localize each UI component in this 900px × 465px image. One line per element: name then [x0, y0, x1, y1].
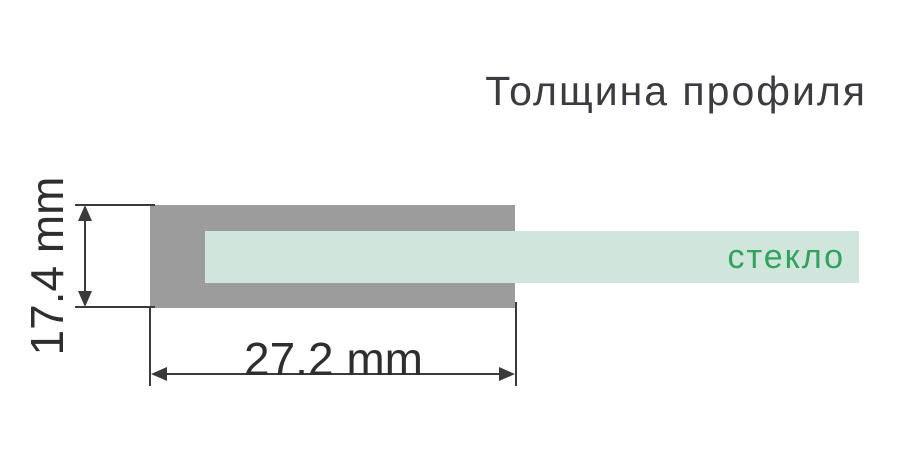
glass-label: стекло — [728, 231, 860, 283]
height-dimension-label: 17.4 mm — [20, 177, 74, 356]
glass-panel: стекло — [205, 231, 859, 283]
height-dimension-line — [84, 212, 86, 302]
arrow-down-icon — [78, 291, 92, 307]
diagram-title: Толщина профиля — [485, 68, 867, 115]
width-dimension-label: 27.2 mm — [150, 332, 517, 386]
arrow-up-icon — [78, 205, 92, 221]
profile-thickness-diagram: Толщина профиля стекло 17.4 mm 27.2 mm — [0, 0, 900, 465]
